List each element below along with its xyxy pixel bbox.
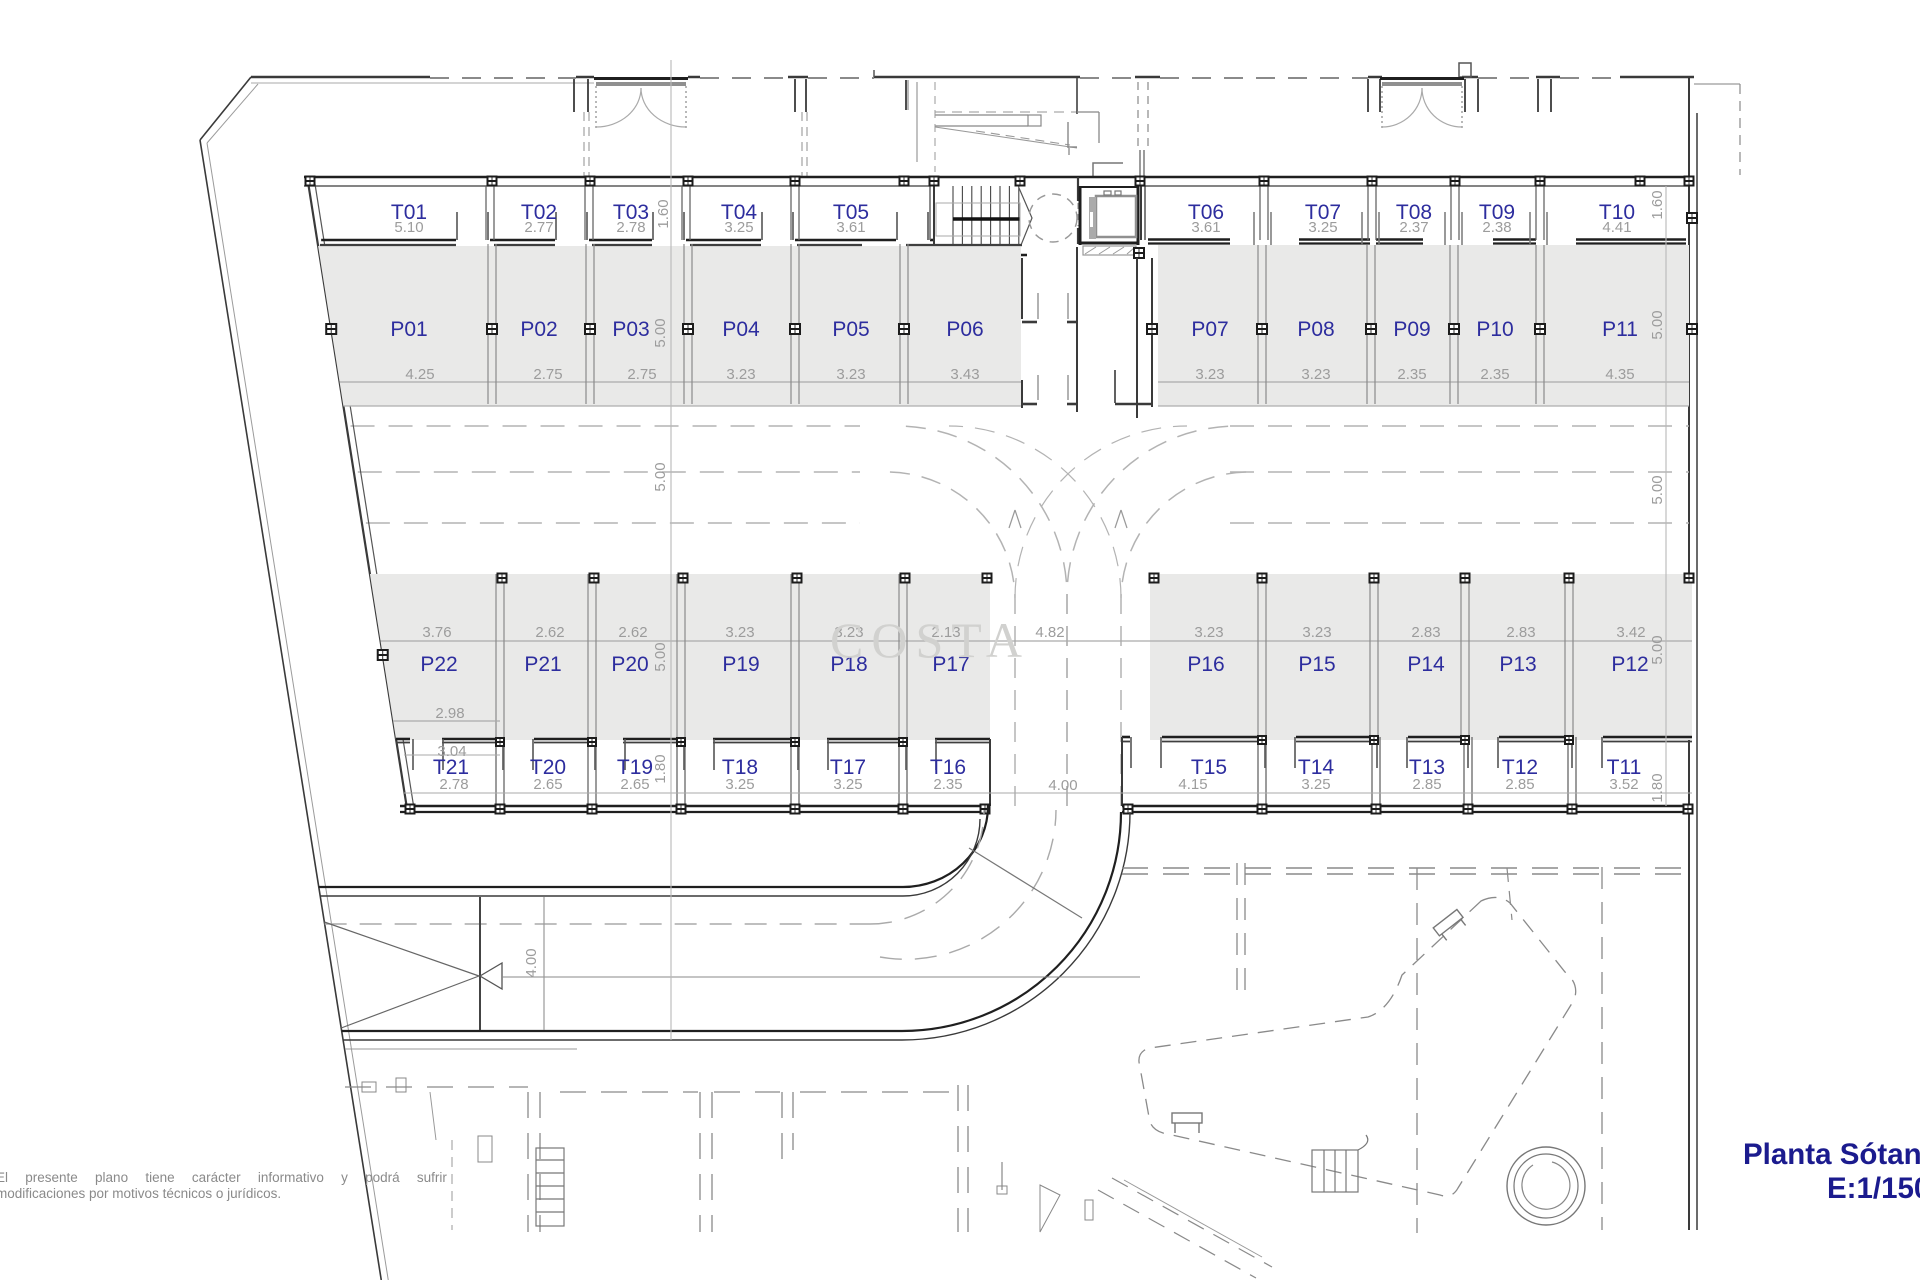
svg-text:2.38: 2.38	[1482, 219, 1511, 236]
svg-text:P16: P16	[1187, 653, 1224, 676]
svg-text:3.25: 3.25	[1301, 776, 1330, 793]
svg-text:5.00: 5.00	[1649, 635, 1666, 664]
svg-text:3.25: 3.25	[1308, 219, 1337, 236]
svg-text:4.15: 4.15	[1178, 776, 1207, 793]
svg-text:2.37: 2.37	[1399, 219, 1428, 236]
svg-text:COSTA: COSTA	[830, 612, 1030, 668]
svg-text:2.65: 2.65	[620, 776, 649, 793]
svg-text:3.76: 3.76	[422, 624, 451, 641]
svg-text:5.10: 5.10	[394, 219, 423, 236]
svg-text:2.83: 2.83	[1411, 624, 1440, 641]
svg-text:3.23: 3.23	[1301, 366, 1330, 383]
svg-text:2.98: 2.98	[435, 705, 464, 722]
svg-text:5.00: 5.00	[652, 318, 669, 347]
svg-text:2.85: 2.85	[1412, 776, 1441, 793]
svg-text:P08: P08	[1297, 318, 1334, 341]
svg-text:P22: P22	[420, 653, 457, 676]
svg-text:3.23: 3.23	[1195, 366, 1224, 383]
svg-text:P05: P05	[832, 318, 869, 341]
svg-text:3.52: 3.52	[1609, 776, 1638, 793]
svg-text:2.75: 2.75	[533, 366, 562, 383]
svg-text:P10: P10	[1476, 318, 1513, 341]
svg-text:P03: P03	[612, 318, 649, 341]
svg-text:5.00: 5.00	[1649, 310, 1666, 339]
svg-text:4.25: 4.25	[405, 366, 434, 383]
svg-text:2.35: 2.35	[1397, 366, 1426, 383]
svg-text:1.80: 1.80	[1649, 773, 1666, 802]
svg-text:5.00: 5.00	[652, 642, 669, 671]
svg-text:2.65: 2.65	[533, 776, 562, 793]
svg-text:P12: P12	[1611, 653, 1648, 676]
svg-text:P06: P06	[946, 318, 983, 341]
svg-text:2.77: 2.77	[524, 219, 553, 236]
svg-text:P04: P04	[722, 318, 760, 341]
svg-text:3.23: 3.23	[725, 624, 754, 641]
svg-text:P13: P13	[1499, 653, 1536, 676]
svg-text:3.23: 3.23	[1194, 624, 1223, 641]
svg-text:1.60: 1.60	[1649, 190, 1666, 219]
svg-text:2.62: 2.62	[618, 624, 647, 641]
svg-text:1.80: 1.80	[652, 754, 669, 783]
svg-text:3.25: 3.25	[725, 776, 754, 793]
svg-text:P02: P02	[520, 318, 557, 341]
svg-text:2.35: 2.35	[933, 776, 962, 793]
svg-text:P11: P11	[1602, 318, 1638, 341]
svg-text:El presente plano tiene caráct: El presente plano tiene carácter informa…	[0, 1170, 447, 1185]
svg-text:3.43: 3.43	[950, 366, 979, 383]
svg-text:2.78: 2.78	[439, 776, 468, 793]
svg-text:P21: P21	[524, 653, 561, 676]
svg-text:4.00: 4.00	[1048, 777, 1077, 794]
svg-text:P20: P20	[611, 653, 648, 676]
svg-text:3.25: 3.25	[724, 219, 753, 236]
svg-text:2.35: 2.35	[1480, 366, 1509, 383]
svg-text:4.41: 4.41	[1602, 219, 1631, 236]
svg-text:P19: P19	[722, 653, 759, 676]
svg-text:P07: P07	[1191, 318, 1228, 341]
svg-text:P09: P09	[1393, 318, 1430, 341]
svg-text:P01: P01	[390, 318, 427, 341]
svg-text:P15: P15	[1298, 653, 1335, 676]
svg-text:3.25: 3.25	[833, 776, 862, 793]
svg-text:3.23: 3.23	[726, 366, 755, 383]
svg-text:5.00: 5.00	[652, 462, 669, 491]
svg-text:2.83: 2.83	[1506, 624, 1535, 641]
svg-text:Planta Sótano: Planta Sótano	[1743, 1138, 1920, 1171]
svg-text:2.78: 2.78	[616, 219, 645, 236]
svg-text:2.85: 2.85	[1505, 776, 1534, 793]
svg-text:1.60: 1.60	[655, 199, 672, 228]
svg-text:modificaciones por motivos téc: modificaciones por motivos técnicos o ju…	[0, 1186, 281, 1201]
svg-text:2.62: 2.62	[535, 624, 564, 641]
svg-text:E:1/150: E:1/150	[1827, 1172, 1920, 1205]
svg-text:4.82: 4.82	[1035, 624, 1064, 641]
svg-text:3.61: 3.61	[836, 219, 865, 236]
svg-text:3.61: 3.61	[1191, 219, 1220, 236]
svg-text:2.75: 2.75	[627, 366, 656, 383]
svg-text:3.23: 3.23	[836, 366, 865, 383]
svg-text:5.00: 5.00	[1649, 475, 1666, 504]
svg-text:4.35: 4.35	[1605, 366, 1634, 383]
svg-text:4.00: 4.00	[523, 948, 540, 977]
svg-text:P14: P14	[1407, 653, 1445, 676]
svg-text:3.23: 3.23	[1302, 624, 1331, 641]
svg-text:3.42: 3.42	[1616, 624, 1645, 641]
